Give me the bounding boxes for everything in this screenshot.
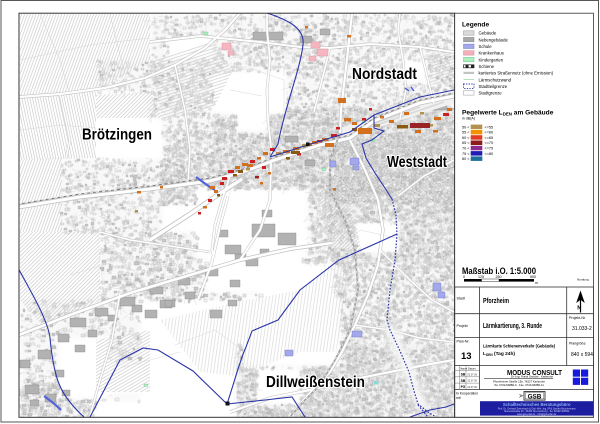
svg-text:Krankenhaus: Krankenhaus — [479, 51, 504, 56]
svg-text:50 <: 50 < — [462, 125, 470, 129]
svg-text:65 <: 65 < — [462, 141, 470, 145]
svg-text:Brötzingen: Brötzingen — [82, 127, 152, 144]
svg-text:Pforzheim: Pforzheim — [483, 296, 509, 305]
svg-text:Datum: Datum — [468, 366, 476, 370]
svg-text:60 <: 60 < — [462, 136, 470, 140]
svg-text:SB: SB — [461, 379, 466, 383]
svg-text:Lärmschutzwand: Lärmschutzwand — [479, 77, 512, 82]
svg-text:Schiene: Schiene — [479, 64, 495, 69]
svg-text:500: 500 — [530, 275, 536, 279]
svg-text:02.07.09: 02.07.09 — [468, 380, 478, 383]
svg-text:Schule: Schule — [479, 44, 493, 49]
svg-text:02.07.09: 02.07.09 — [468, 386, 478, 389]
svg-text:55 <: 55 < — [462, 131, 470, 135]
svg-text:70 <: 70 < — [462, 147, 470, 151]
svg-text:Stadt: Stadt — [457, 297, 465, 301]
svg-text:Nordung: Nordung — [577, 278, 589, 282]
svg-text:13: 13 — [461, 351, 472, 362]
svg-text:Lärmkartierung, 3. Runde: Lärmkartierung, 3. Runde — [483, 321, 542, 330]
svg-text:<=75: <=75 — [485, 147, 494, 151]
svg-text:Nebengebäude: Nebengebäude — [479, 37, 509, 42]
svg-text:m: m — [535, 281, 538, 285]
svg-text:<=65: <=65 — [485, 136, 494, 140]
svg-text:31.033-2: 31.033-2 — [572, 326, 592, 332]
svg-text:N: N — [577, 306, 581, 312]
svg-text:Schalltechnisches Beratungsbür: Schalltechnisches Beratungsbüro — [503, 402, 571, 407]
svg-text:80 <: 80 < — [462, 157, 470, 161]
svg-text:0: 0 — [463, 275, 465, 279]
svg-text:Lärmkarte Schienenverkehr (Geb: Lärmkarte Schienenverkehr (Gebäude) — [483, 344, 555, 350]
svg-text:Weststadt: Weststadt — [387, 154, 447, 171]
svg-text:<=60: <=60 — [485, 131, 494, 135]
svg-text:Plangröße: Plangröße — [569, 342, 586, 346]
svg-text:250: 250 — [496, 275, 502, 279]
svg-text:Dillweißenstein: Dillweißenstein — [266, 374, 365, 391]
svg-text:Stadtteilgrenze: Stadtteilgrenze — [479, 84, 508, 89]
svg-text:<=55: <=55 — [485, 125, 494, 129]
svg-text:Legende: Legende — [462, 22, 489, 29]
svg-text:www.gsb-plan.de · info@gsb-pla: www.gsb-plan.de · info@gsb-plan.de — [517, 413, 557, 416]
svg-text:mit: mit — [456, 396, 461, 400]
svg-text:Projekt-Nr: Projekt-Nr — [569, 316, 586, 320]
svg-text:Dr.-Ing. Frank Gericke · Karls: Dr.-Ing. Frank Gericke · Karlsruhe — [511, 375, 553, 379]
svg-text:Nordstadt: Nordstadt — [352, 66, 417, 83]
svg-text:Gebäude: Gebäude — [479, 31, 497, 36]
svg-text:GSB: GSB — [528, 394, 542, 401]
svg-text:kartiertes Straßennetz (ohne E: kartiertes Straßennetz (ohne Emission) — [479, 71, 554, 76]
svg-text:Name: Name — [460, 366, 467, 370]
svg-text:SB: SB — [461, 373, 466, 377]
svg-text:Stadtgrenze: Stadtgrenze — [479, 91, 503, 96]
svg-text:840 x 594: 840 x 594 — [571, 352, 593, 358]
svg-text:<=80: <=80 — [485, 152, 494, 156]
svg-text:FG: FG — [461, 385, 466, 389]
svg-text:02.07.09: 02.07.09 — [468, 373, 478, 376]
svg-text:Projekt: Projekt — [457, 324, 468, 328]
svg-text:75 <: 75 < — [462, 152, 470, 156]
svg-text:in dB(A): in dB(A) — [462, 117, 475, 121]
svg-text:125: 125 — [478, 275, 484, 279]
svg-text:<=70: <=70 — [485, 141, 494, 145]
svg-text:Kindergarten: Kindergarten — [479, 57, 504, 62]
svg-text:Plan-Nr.: Plan-Nr. — [457, 340, 470, 344]
svg-text:Tel. 0721/94886-0 · Fax. 072: Tel. 0721/94886-0 · Fax. 0721/94886-11 — [494, 383, 544, 387]
